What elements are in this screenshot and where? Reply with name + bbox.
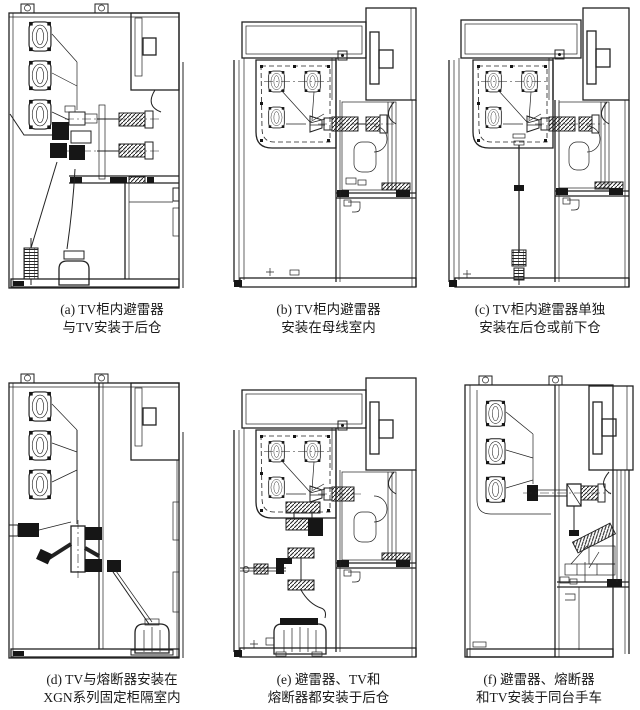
fuse-assembly [523, 484, 611, 506]
base-channel [467, 642, 613, 657]
figure-caption: (d) TV与熔断器安装在 XGN系列固定柜隔室内 [43, 671, 180, 707]
cabinet-diagram-c [441, 2, 639, 297]
bushing-icon [269, 71, 321, 128]
bushing-icon [29, 22, 51, 129]
figure-c: (c) TV柜内避雷器单独 安装在后仓或前下仓 [440, 2, 640, 337]
caption-line: (b) TV柜内避雷器 [276, 301, 380, 319]
figure-caption: (e) 避雷器、TV和 熔断器都安装于后仓 [268, 671, 390, 707]
caption-line: 与TV安装于后仓 [60, 319, 164, 337]
base-channel [11, 279, 179, 287]
arrester-icon [512, 250, 526, 285]
cabinet-frame [234, 22, 416, 287]
caption-line: 安装在母线室内 [276, 319, 380, 337]
caption-line: (f) 避雷器、熔断器 [476, 671, 602, 689]
mechanism [559, 102, 609, 188]
cabinet-frame [9, 374, 183, 658]
bushing-icon [29, 392, 51, 499]
divider-belt [336, 553, 416, 568]
bushing-icon [269, 441, 321, 498]
figure-e: (e) 避雷器、TV和 熔断器都安装于后仓 [225, 372, 432, 707]
cable [301, 590, 326, 618]
figure-caption: (a) TV柜内避雷器 与TV安装于后仓 [60, 301, 164, 337]
cabinet-frame [9, 4, 183, 288]
base-channel [234, 278, 416, 287]
arrester-icon [24, 238, 38, 285]
conductors [39, 404, 77, 530]
caption-line: (e) 避雷器、TV和 [268, 671, 390, 689]
divider-belt [555, 182, 629, 196]
tv-transformer-icon [266, 618, 326, 656]
cabinet-diagram-a [7, 2, 217, 297]
mechanism [342, 102, 396, 190]
earth-rod [513, 134, 525, 252]
figure-caption: (b) TV柜内避雷器 安装在母线室内 [276, 301, 380, 337]
base-channel [449, 270, 629, 287]
conductors [10, 34, 77, 135]
cables [31, 162, 75, 249]
figure-caption: (f) 避雷器、熔断器 和TV安装于同台手车 [476, 671, 602, 707]
bushing-icon [486, 71, 538, 128]
arrester-block [50, 122, 91, 160]
figure-f: (f) 避雷器、熔断器 和TV安装于同台手车 [438, 372, 640, 707]
wall-bushing [9, 523, 39, 537]
conductors [264, 452, 332, 496]
bushing-icon [486, 401, 505, 502]
figure-caption: (c) TV柜内避雷器单独 安装在后仓或前下仓 [475, 301, 606, 337]
cabinet-diagram-d [7, 372, 217, 667]
operating-rod [113, 571, 152, 624]
figure-b: (b) TV柜内避雷器 安装在母线室内 [225, 2, 432, 337]
lower-compartment [565, 587, 579, 650]
instrument-panel [589, 386, 633, 470]
left-panel [477, 390, 551, 514]
vertical-fuse-stack [286, 502, 323, 590]
instrument-panel [131, 383, 179, 658]
conductors [506, 412, 533, 488]
lower-compartment [125, 183, 179, 279]
figure-d: (d) TV与熔断器安装在 XGN系列固定柜隔室内 [6, 372, 218, 707]
caption-line: (d) TV与熔断器安装在 [43, 671, 180, 689]
conductors [481, 82, 549, 126]
cabinet-diagram-f [439, 372, 639, 667]
caption-line: 熔断器都安装于后仓 [268, 689, 390, 707]
earth-switch-rod [240, 558, 292, 574]
divider-belt [69, 176, 179, 183]
diagram-page: (a) TV柜内避雷器 与TV安装于后仓 [0, 0, 640, 710]
fuse-assembly [527, 115, 605, 133]
caption-line: 安装在后仓或前下仓 [475, 319, 606, 337]
fuse-assembly [65, 105, 159, 179]
figure-a: (a) TV柜内避雷器 与TV安装于后仓 [6, 2, 218, 337]
caption-line: 和TV安装于同台手车 [476, 689, 602, 707]
divider-belt [557, 577, 629, 587]
mechanism [342, 472, 396, 560]
cabinet-diagram-e [226, 372, 431, 667]
fuse-holder [71, 520, 121, 578]
busbar-compartment [256, 58, 336, 148]
instrument-panel [131, 13, 179, 112]
caption-line: (a) TV柜内避雷器 [60, 301, 164, 319]
caption-line: XGN系列固定柜隔室内 [43, 689, 180, 707]
handcart [565, 546, 615, 575]
conductors [264, 82, 332, 126]
fuse-assembly [310, 115, 394, 133]
divider-belt [336, 183, 416, 198]
support-insulator-icon [59, 251, 89, 285]
caption-line: (c) TV柜内避雷器单独 [475, 301, 606, 319]
cabinet-diagram-b [226, 2, 431, 297]
